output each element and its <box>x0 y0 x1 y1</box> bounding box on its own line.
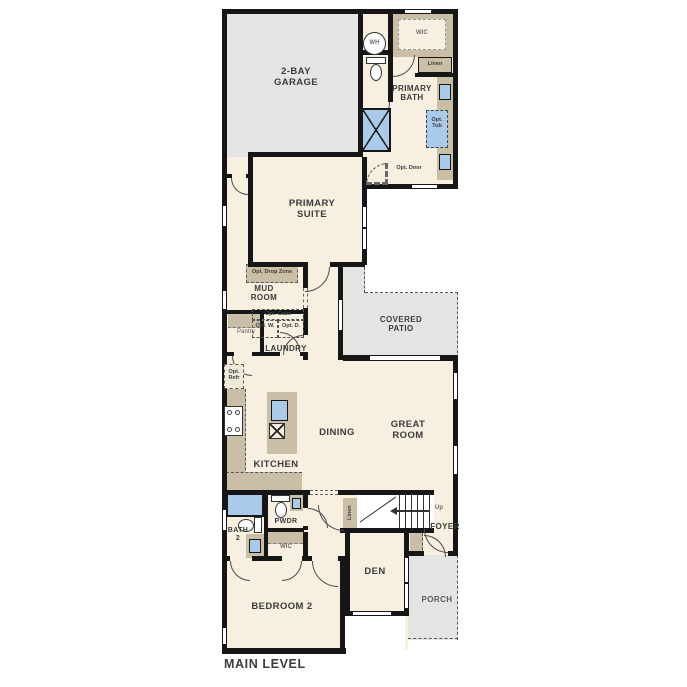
wall <box>453 474 458 555</box>
wall <box>303 495 308 508</box>
floor-plan: Linen <box>0 0 687 687</box>
wall <box>253 262 305 267</box>
wall <box>222 648 346 654</box>
wall <box>345 611 353 616</box>
wall <box>330 262 365 267</box>
wic2-shelf <box>268 532 303 544</box>
toilet-icon <box>271 495 290 502</box>
wall <box>343 355 370 361</box>
range-icon <box>224 406 243 436</box>
room-label-wic-primary: WIC <box>398 30 446 37</box>
window <box>222 291 227 309</box>
window <box>222 628 227 644</box>
wall <box>268 528 304 532</box>
bathtub-icon <box>226 493 264 517</box>
wall <box>248 152 362 157</box>
room-label-pantry: Pantry <box>232 329 260 336</box>
room-label-den: DEN <box>360 566 390 577</box>
stair-direction-arrow <box>396 510 430 512</box>
wall <box>453 9 458 189</box>
room-label-covered-patio: COVERED PATIO <box>371 315 431 334</box>
water-heater-label: WH <box>363 40 386 47</box>
wall <box>345 533 350 615</box>
window <box>362 229 367 249</box>
opt-tub-label: Opt. Tub <box>426 117 448 130</box>
room-label-laundry: LAUNDRY <box>262 344 310 353</box>
stair-arrow-head <box>390 507 397 515</box>
linen-label: Linen <box>418 61 452 67</box>
room-label-kitchen: KITCHEN <box>246 459 306 470</box>
patio-dashed-edge <box>456 292 458 358</box>
plan-title: MAIN LEVEL <box>224 657 344 672</box>
room-label-foyer: FOYER <box>429 522 461 531</box>
shower-icon <box>361 108 391 152</box>
window <box>405 9 431 14</box>
wall <box>391 611 409 616</box>
room-label-dining: DINING <box>312 427 362 438</box>
porch-dashed-edge <box>408 638 458 640</box>
island-sink-icon <box>271 400 288 421</box>
opt-refr-label: Opt. Refr <box>224 369 244 382</box>
wall <box>302 556 312 561</box>
sliding-glass-door <box>370 355 440 361</box>
sink-icon <box>292 498 301 509</box>
wall <box>388 12 393 55</box>
wall <box>340 556 345 650</box>
wall <box>340 528 434 533</box>
toilet-icon <box>254 517 262 533</box>
patio-dashed-edge <box>365 292 458 294</box>
room-label-garage: 2-BAY GARAGE <box>261 66 331 88</box>
stairs-up-label: Up <box>431 505 447 512</box>
patio-floor-inner <box>343 262 365 358</box>
sink-icon <box>439 84 451 100</box>
window <box>453 373 458 399</box>
sink-icon <box>249 539 261 553</box>
window <box>362 207 367 227</box>
window <box>453 446 458 474</box>
window <box>353 611 391 616</box>
window <box>338 300 343 330</box>
dishwasher-icon <box>269 423 285 439</box>
cased-opening <box>310 490 338 495</box>
room-label-primary-bath: PRIMARY BATH <box>384 84 440 103</box>
patio-dashed-edge <box>363 267 365 293</box>
opt-cabs-label: Opt. Cabs <box>254 311 302 317</box>
stairs-linen-closet: Linen <box>343 498 357 528</box>
room-label-mud-room: MUD ROOM <box>240 284 288 303</box>
wall <box>252 556 282 561</box>
opt-dryer-label: Opt. D. <box>279 323 303 329</box>
opt-drop-zone-label: Opt. Drop Zone <box>248 269 296 275</box>
room-label-primary-suite: PRIMARY SUITE <box>277 198 347 220</box>
stair-treads <box>394 495 434 528</box>
wall <box>338 262 343 300</box>
toilet-icon <box>370 64 382 81</box>
opt-door-label: Opt. Door <box>396 165 422 171</box>
wall <box>404 551 424 556</box>
room-label-great-room: GREAT ROOM <box>383 419 433 441</box>
room-label-porch: PORCH <box>418 595 456 604</box>
room-label-bath2: BATH 2 <box>227 527 249 544</box>
kitchen-counter-bottom <box>226 472 302 490</box>
wall <box>453 399 458 446</box>
room-label-bedroom2: BEDROOM 2 <box>248 601 316 612</box>
wall <box>415 73 458 77</box>
window <box>404 558 409 582</box>
window <box>404 584 409 608</box>
porch-dashed-edge <box>456 555 458 640</box>
wall <box>448 551 458 556</box>
room-label-pwdr: PWDR <box>268 518 304 526</box>
toilet-icon <box>366 57 386 64</box>
window <box>412 184 437 189</box>
room-label-wic2: WIC <box>272 544 300 551</box>
window <box>222 206 227 226</box>
wall <box>303 532 308 556</box>
wall <box>437 184 458 189</box>
exterior-cutout <box>345 616 405 650</box>
toilet-icon <box>275 502 287 518</box>
sink-icon <box>439 154 451 170</box>
wall <box>453 360 458 373</box>
wall <box>248 152 253 267</box>
